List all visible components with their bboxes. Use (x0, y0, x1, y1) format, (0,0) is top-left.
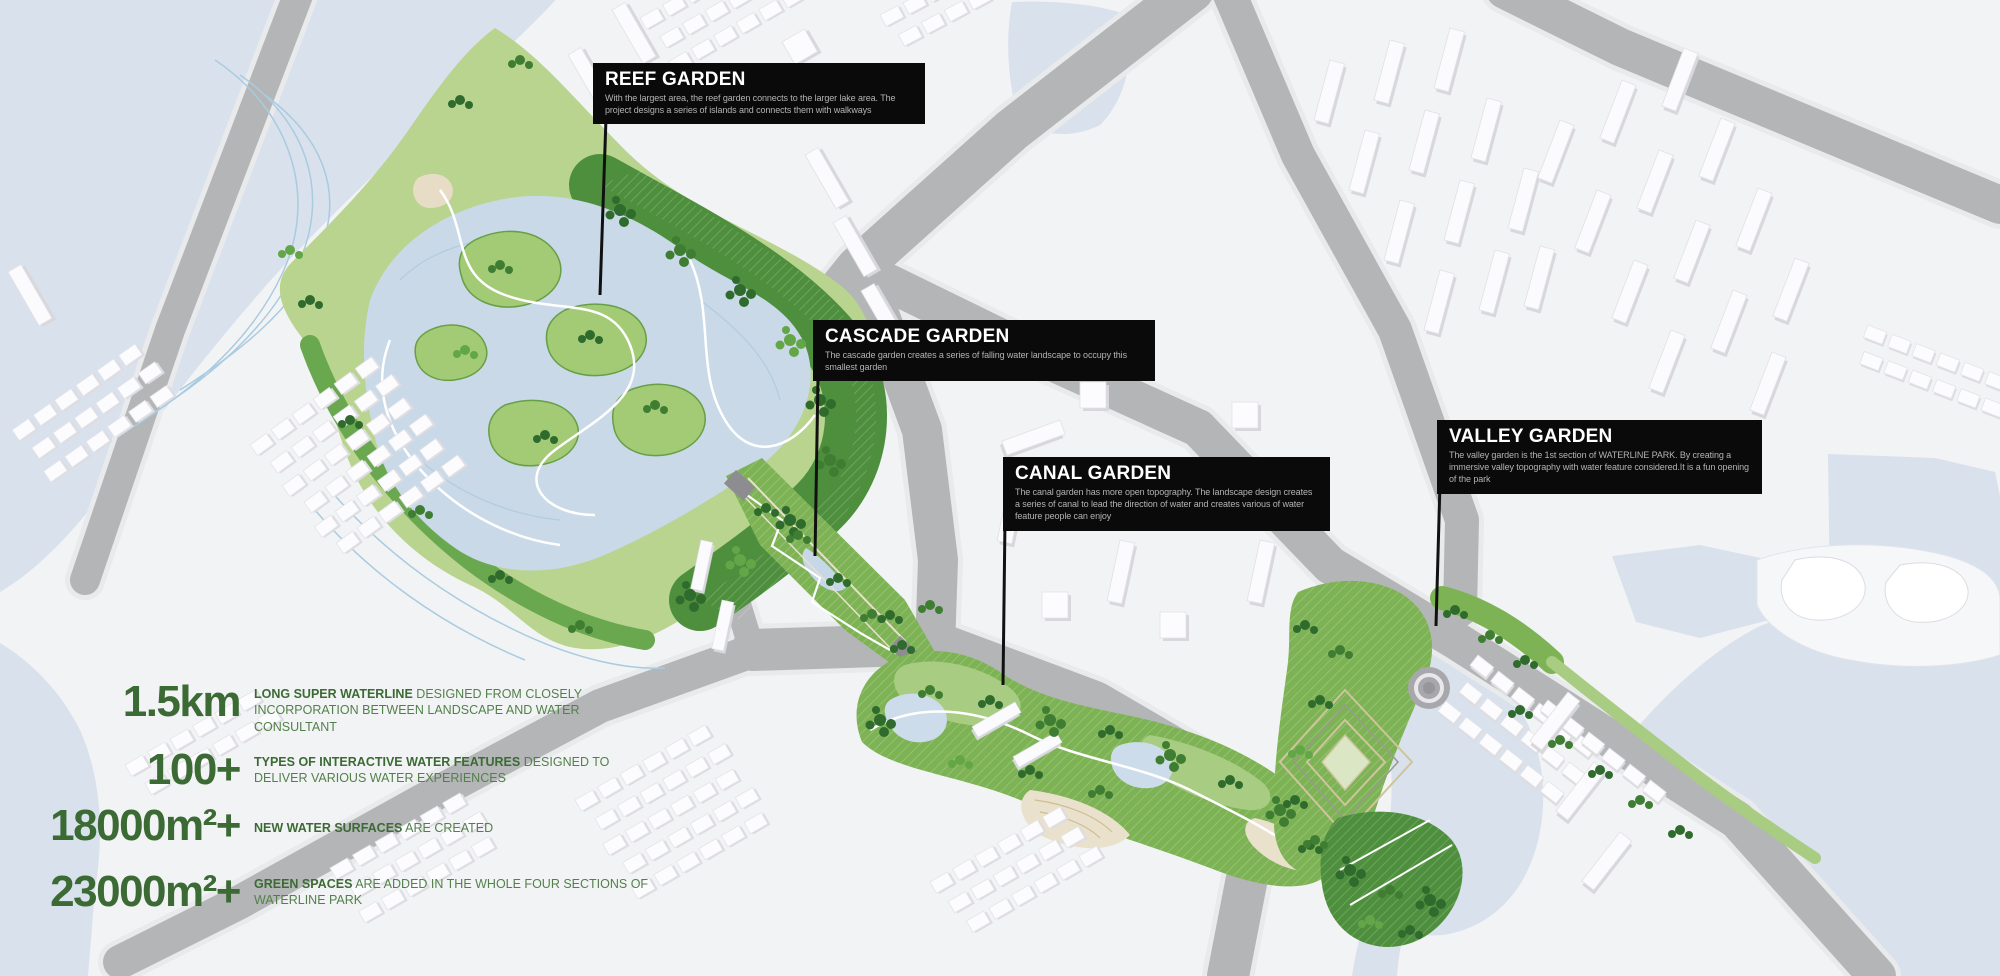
callout-description: The cascade garden creates a series of f… (825, 349, 1143, 373)
stat-value: 1.5km (30, 682, 240, 722)
stat-description: GREEN SPACES ARE ADDED IN THE WHOLE FOUR… (254, 872, 654, 909)
stat-description: TYPES OF INTERACTIVE WATER FEATURES DESI… (254, 750, 654, 787)
stat-description: NEW WATER SURFACES ARE CREATED (254, 806, 654, 836)
stat-description: LONG SUPER WATERLINE DESIGNED FROM CLOSE… (254, 682, 654, 735)
stat-highlight: LONG SUPER WATERLINE (254, 687, 413, 701)
stat-row-water-features: 100+ TYPES OF INTERACTIVE WATER FEATURES… (30, 750, 654, 790)
road-top-right (1505, 0, 2000, 205)
callout-title: REEF GARDEN (605, 70, 913, 89)
stat-row-water-surfaces: 18000m²+ NEW WATER SURFACES ARE CREATED (30, 806, 654, 846)
stat-row-waterline-length: 1.5km LONG SUPER WATERLINE DESIGNED FROM… (30, 682, 654, 735)
stat-rest: ARE CREATED (402, 821, 493, 835)
callout-reef-garden: REEF GARDEN With the largest area, the r… (593, 63, 925, 124)
callout-title: CASCADE GARDEN (825, 327, 1143, 346)
stat-highlight: GREEN SPACES (254, 877, 352, 891)
stat-value: 100+ (30, 750, 240, 790)
stat-row-green-spaces: 23000m²+ GREEN SPACES ARE ADDED IN THE W… (30, 872, 654, 912)
stat-value: 23000m²+ (30, 872, 240, 912)
callout-cascade-garden: CASCADE GARDEN The cascade garden create… (813, 320, 1155, 381)
callout-description: The canal garden has more open topograph… (1015, 486, 1318, 522)
callout-valley-garden: VALLEY GARDEN The valley garden is the 1… (1437, 420, 1762, 494)
housing-northeast (1853, 325, 2000, 420)
roundabout (1408, 667, 1450, 709)
callout-title: VALLEY GARDEN (1449, 427, 1750, 446)
stat-value: 18000m²+ (30, 806, 240, 846)
callout-description: With the largest area, the reef garden c… (605, 92, 913, 116)
leader-line-canal (1003, 520, 1005, 685)
stat-highlight: TYPES OF INTERACTIVE WATER FEATURES (254, 755, 520, 769)
masterplan-poster: REEF GARDEN With the largest area, the r… (0, 0, 2000, 976)
callout-description: The valley garden is the 1st section of … (1449, 449, 1750, 485)
callout-title: CANAL GARDEN (1015, 464, 1318, 483)
callout-canal-garden: CANAL GARDEN The canal garden has more o… (1003, 457, 1330, 531)
stat-highlight: NEW WATER SURFACES (254, 821, 402, 835)
